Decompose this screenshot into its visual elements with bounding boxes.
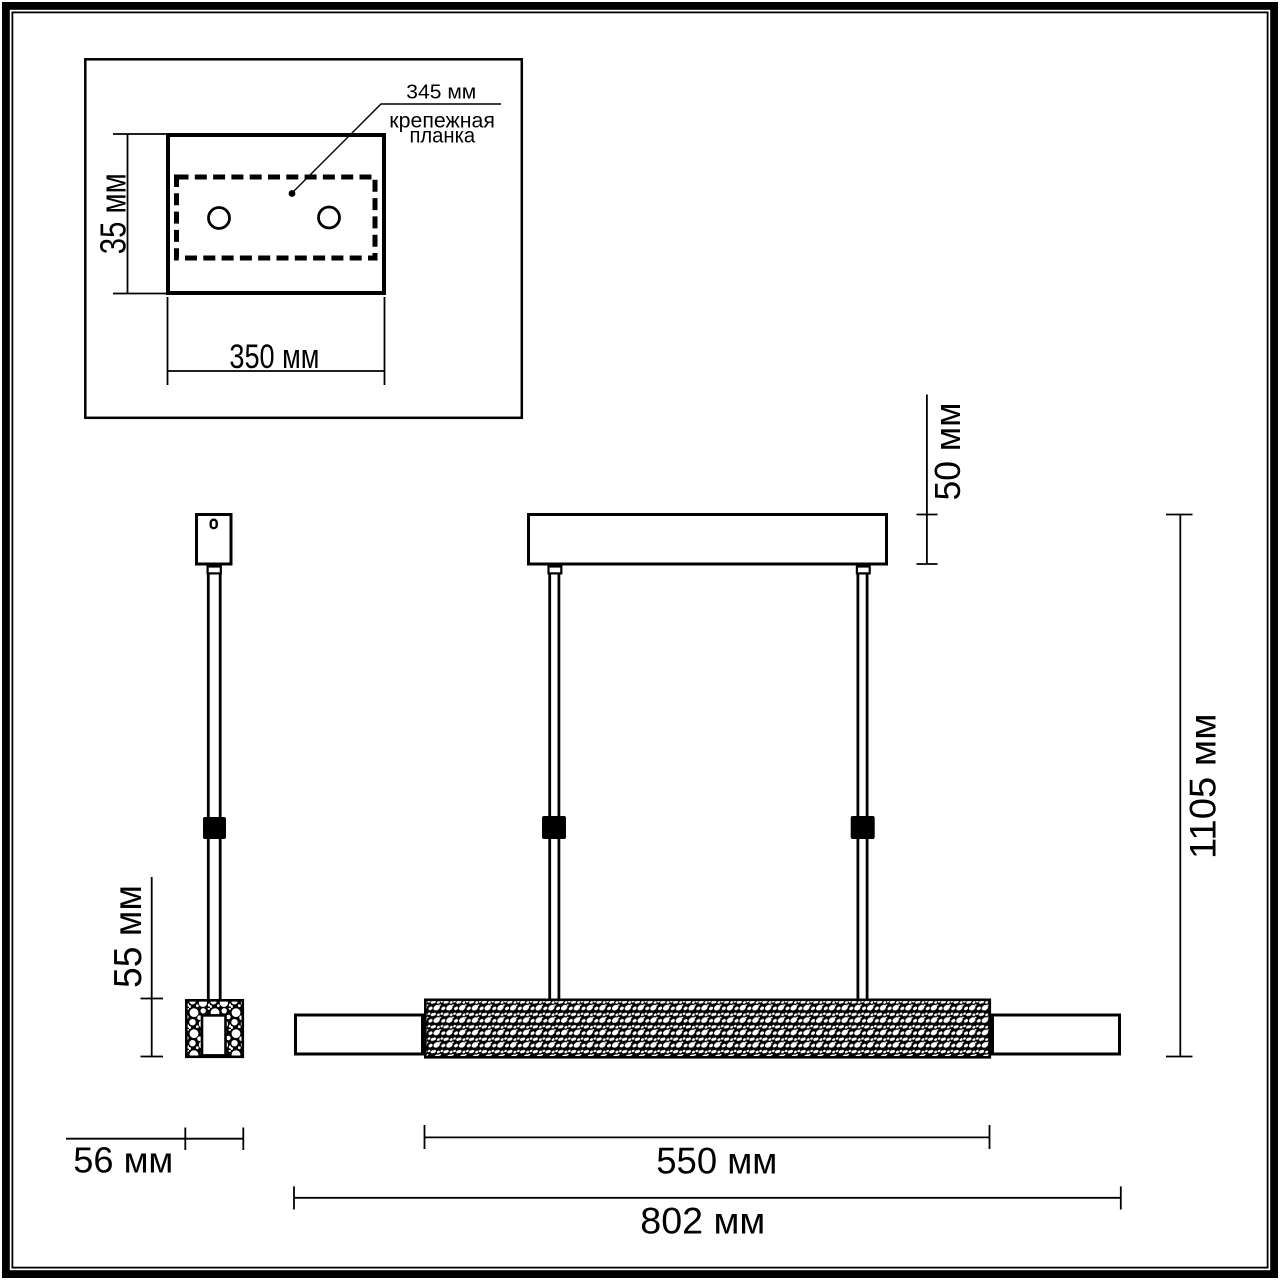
svg-text:350 мм: 350 мм (229, 338, 319, 376)
svg-text:55 мм: 55 мм (107, 885, 150, 988)
svg-text:550 мм: 550 мм (656, 1140, 777, 1181)
svg-text:345 мм: 345 мм (406, 80, 476, 103)
svg-text:1105 мм: 1105 мм (1182, 714, 1224, 860)
svg-text:35 мм: 35 мм (93, 173, 134, 254)
svg-text:56 мм: 56 мм (73, 1139, 173, 1180)
svg-text:планка: планка (409, 125, 475, 148)
svg-text:50 мм: 50 мм (927, 403, 968, 501)
svg-text:802 мм: 802 мм (640, 1200, 765, 1242)
